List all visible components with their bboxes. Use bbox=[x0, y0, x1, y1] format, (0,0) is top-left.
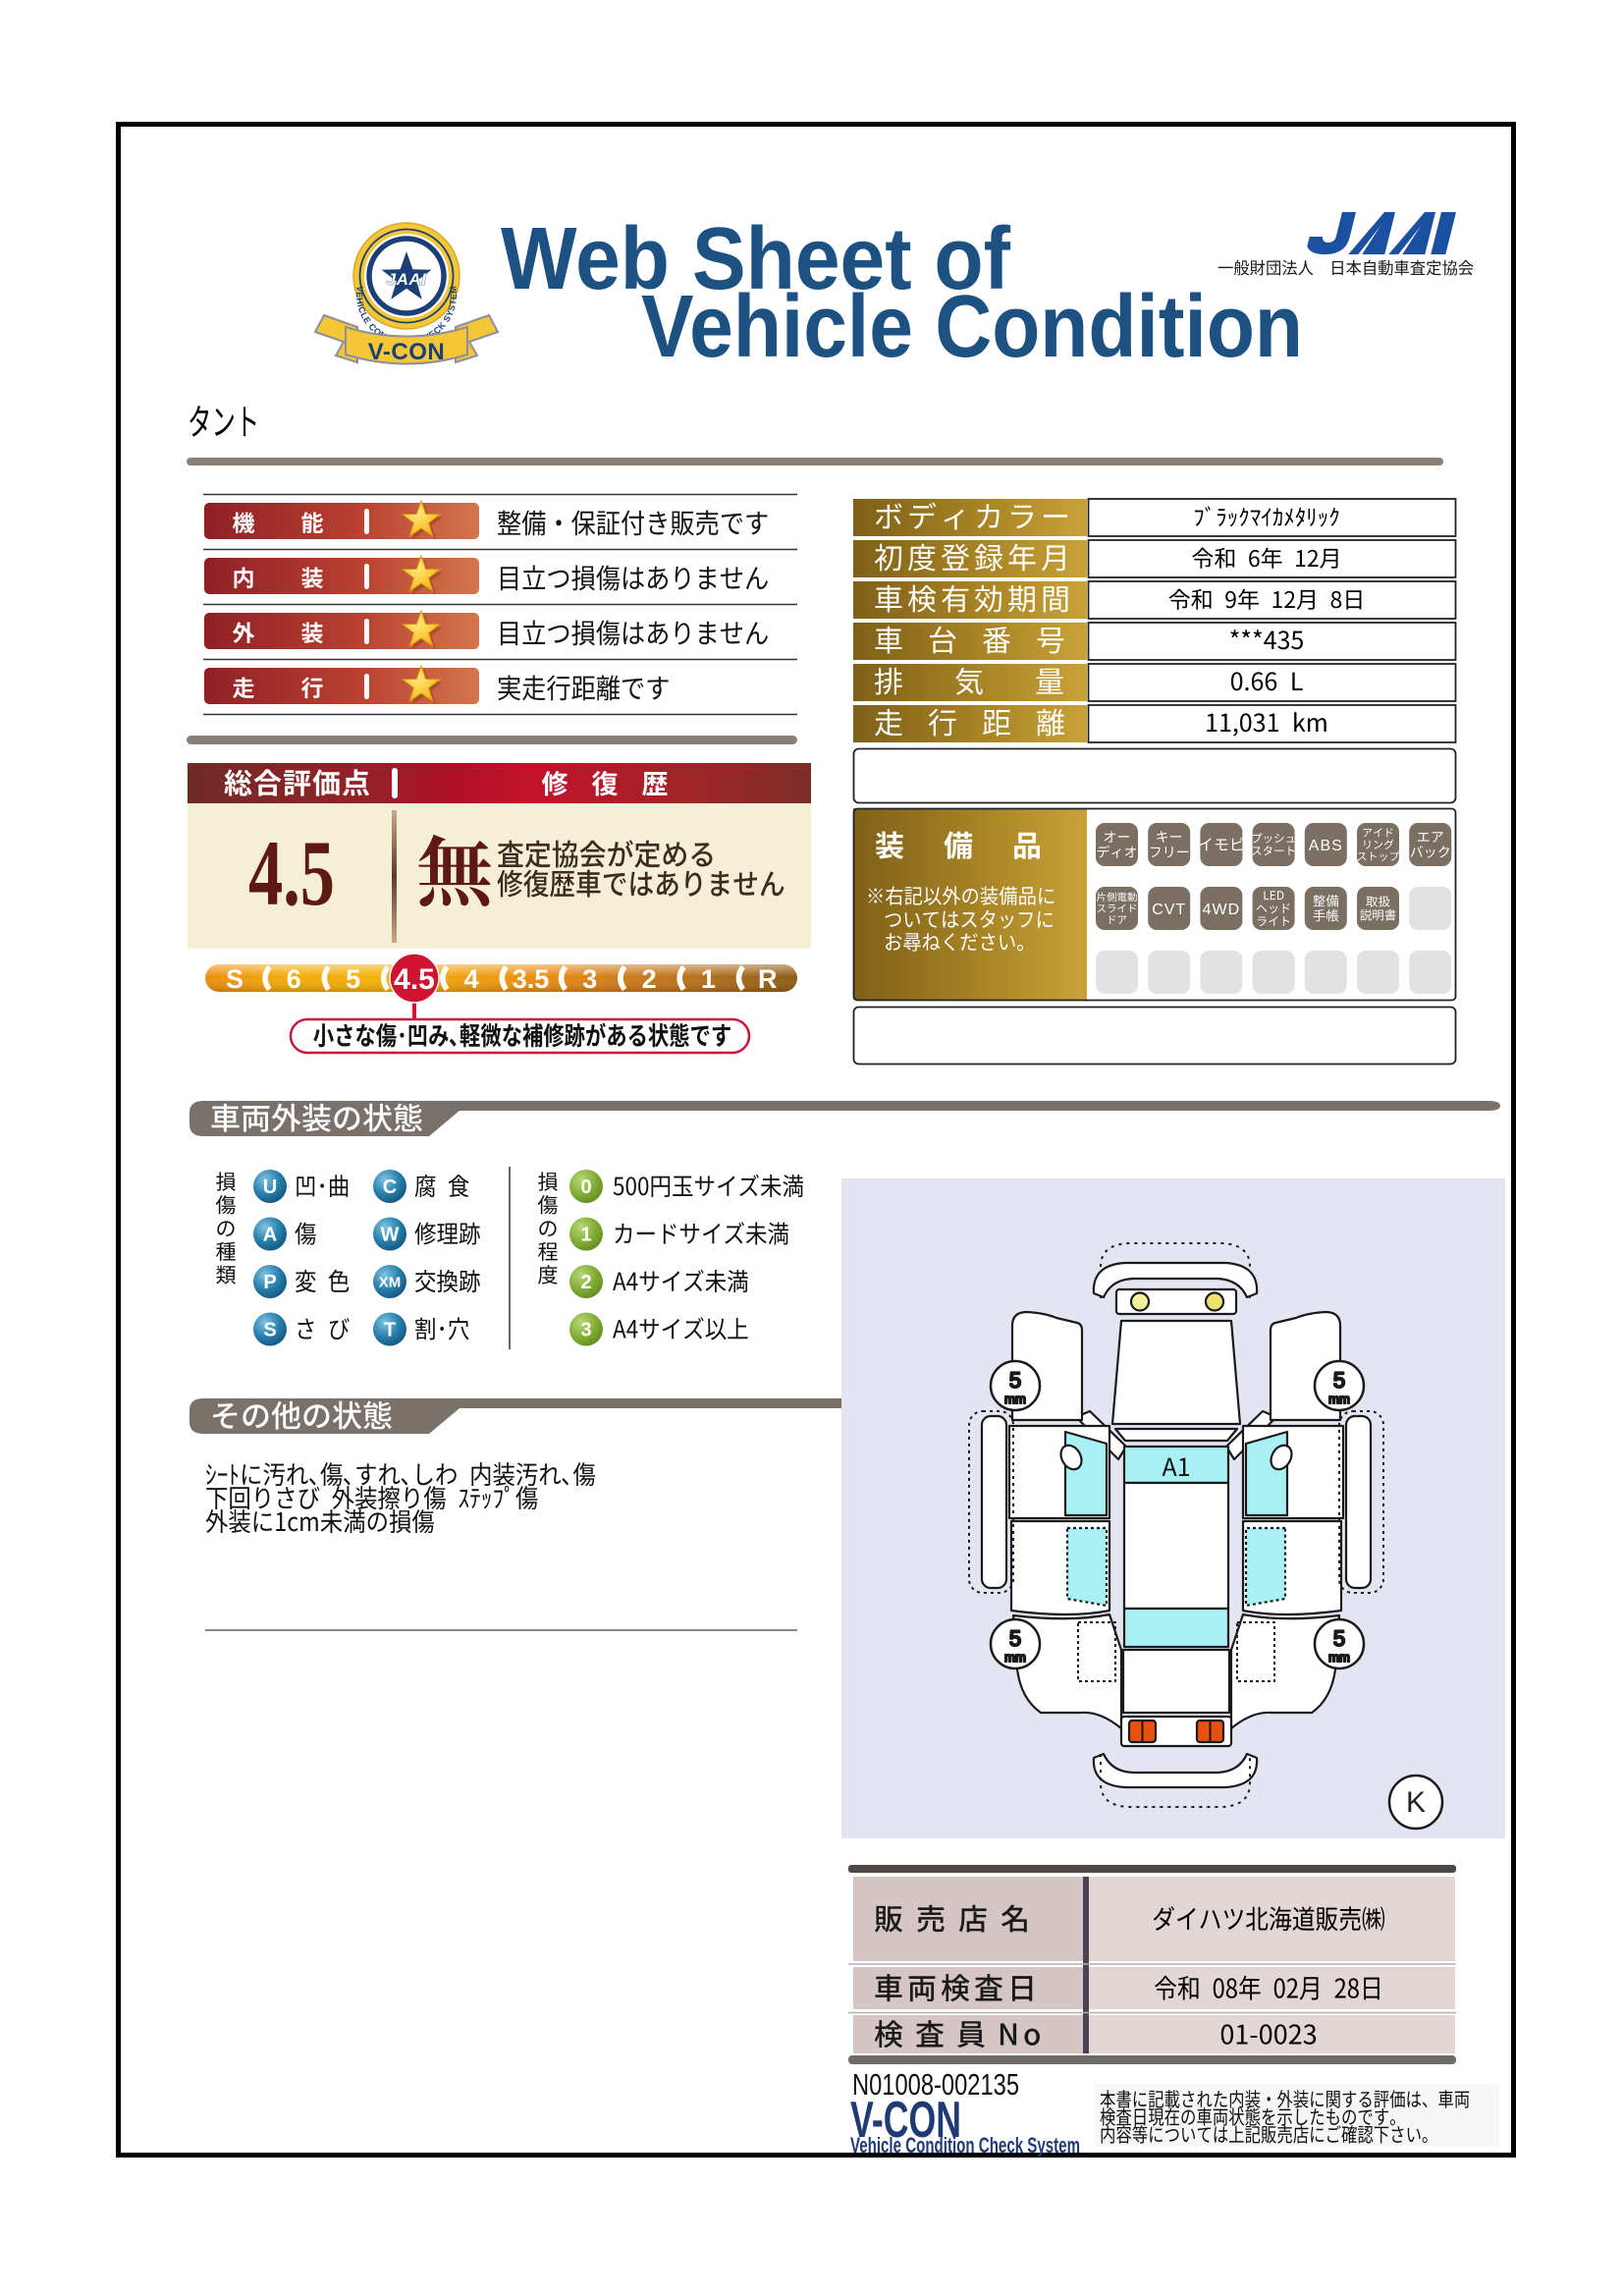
svg-text:2: 2 bbox=[642, 964, 657, 994]
svg-text:3: 3 bbox=[582, 964, 597, 994]
svg-text:CVT: CVT bbox=[1152, 902, 1186, 918]
svg-text:P: P bbox=[263, 1272, 276, 1293]
svg-text:Vehicle Condition Check System: Vehicle Condition Check System bbox=[850, 2133, 1080, 2158]
svg-text:R: R bbox=[758, 964, 778, 994]
svg-text:A: A bbox=[263, 1225, 277, 1246]
svg-text:4.5: 4.5 bbox=[394, 963, 435, 996]
svg-text:6: 6 bbox=[287, 964, 301, 994]
svg-text:3.5: 3.5 bbox=[513, 964, 550, 994]
svg-text:mm: mm bbox=[1004, 1392, 1026, 1406]
svg-text:5: 5 bbox=[346, 964, 360, 994]
svg-text:0: 0 bbox=[580, 1176, 591, 1198]
svg-text:mm: mm bbox=[1004, 1650, 1026, 1665]
svg-text:5: 5 bbox=[1333, 1368, 1345, 1393]
svg-text:S: S bbox=[263, 1320, 276, 1341]
svg-text:2: 2 bbox=[580, 1272, 591, 1293]
svg-text:Vehicle Condition: Vehicle Condition bbox=[641, 278, 1303, 376]
svg-text:C: C bbox=[383, 1176, 397, 1198]
svg-text:1: 1 bbox=[580, 1225, 591, 1246]
svg-text:4: 4 bbox=[464, 964, 479, 994]
svg-text:5: 5 bbox=[1009, 1368, 1021, 1393]
svg-text:T: T bbox=[384, 1320, 396, 1341]
svg-text:JAAI: JAAI bbox=[387, 270, 428, 289]
svg-text:U: U bbox=[263, 1176, 277, 1198]
svg-text:5: 5 bbox=[1009, 1626, 1021, 1651]
svg-text:4.5: 4.5 bbox=[248, 821, 335, 925]
svg-text:4WD: 4WD bbox=[1203, 902, 1241, 918]
svg-text:5: 5 bbox=[1333, 1626, 1345, 1651]
svg-text:mm: mm bbox=[1328, 1650, 1350, 1665]
svg-text:XM: XM bbox=[379, 1274, 402, 1290]
svg-text:3: 3 bbox=[580, 1320, 591, 1341]
svg-text:V-CON: V-CON bbox=[368, 339, 446, 365]
svg-text:1: 1 bbox=[701, 964, 716, 994]
svg-text:mm: mm bbox=[1328, 1392, 1350, 1406]
svg-text:W: W bbox=[381, 1225, 400, 1246]
svg-text:K: K bbox=[1406, 1786, 1426, 1819]
svg-text:S: S bbox=[226, 964, 243, 994]
svg-text:ABS: ABS bbox=[1309, 838, 1343, 854]
